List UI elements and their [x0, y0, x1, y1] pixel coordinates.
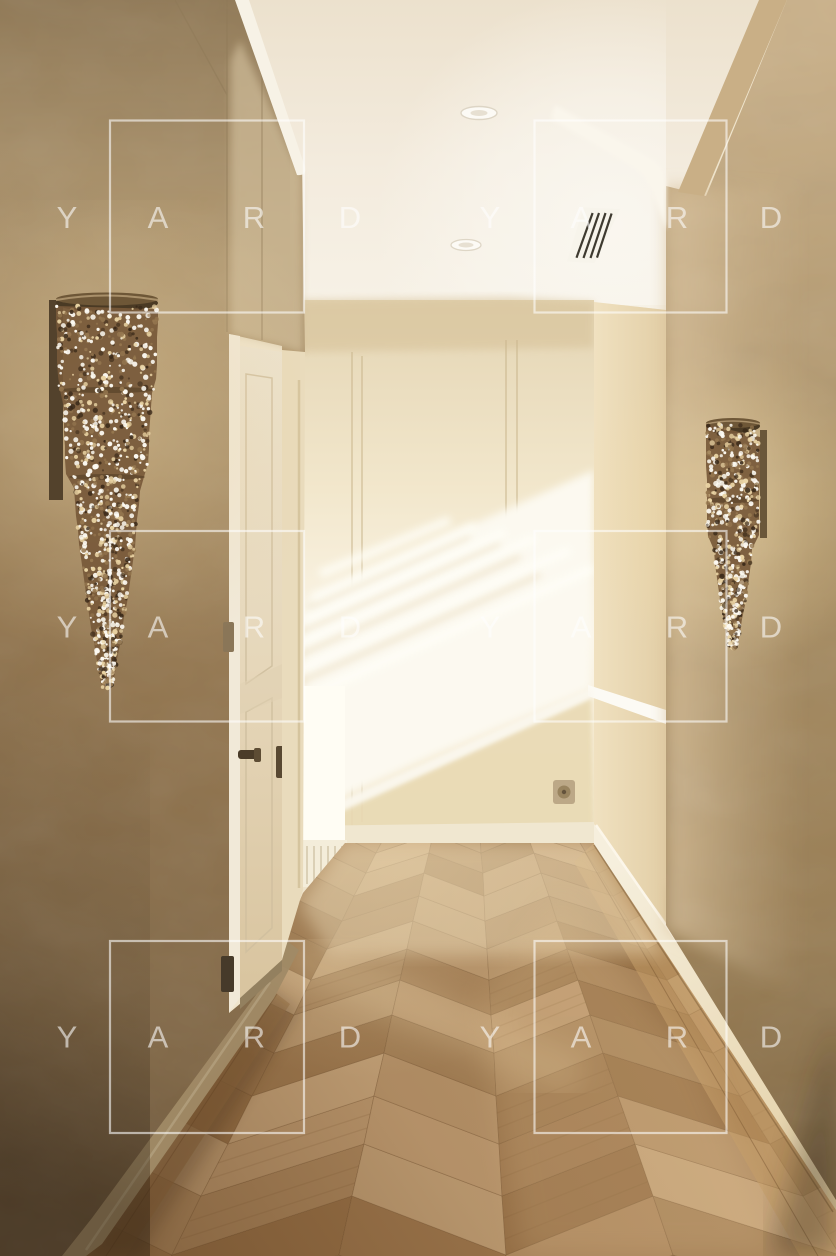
- svg-text:Y: Y: [480, 200, 501, 235]
- svg-text:A: A: [148, 1020, 169, 1055]
- svg-text:D: D: [339, 200, 361, 235]
- svg-text:R: R: [666, 610, 688, 645]
- svg-text:Y: Y: [480, 1020, 501, 1055]
- svg-text:D: D: [760, 610, 782, 645]
- svg-text:A: A: [148, 200, 169, 235]
- svg-text:R: R: [243, 200, 265, 235]
- svg-text:D: D: [760, 1020, 782, 1055]
- svg-text:A: A: [571, 610, 592, 645]
- svg-text:Y: Y: [57, 610, 78, 645]
- svg-text:A: A: [571, 1020, 592, 1055]
- svg-text:R: R: [243, 610, 265, 645]
- svg-text:A: A: [571, 200, 592, 235]
- svg-text:R: R: [666, 200, 688, 235]
- svg-text:R: R: [243, 1020, 265, 1055]
- svg-text:A: A: [148, 610, 169, 645]
- svg-text:D: D: [339, 610, 361, 645]
- svg-text:D: D: [339, 1020, 361, 1055]
- svg-text:D: D: [760, 200, 782, 235]
- svg-text:Y: Y: [57, 200, 78, 235]
- svg-text:Y: Y: [57, 1020, 78, 1055]
- svg-text:R: R: [666, 1020, 688, 1055]
- svg-text:Y: Y: [480, 610, 501, 645]
